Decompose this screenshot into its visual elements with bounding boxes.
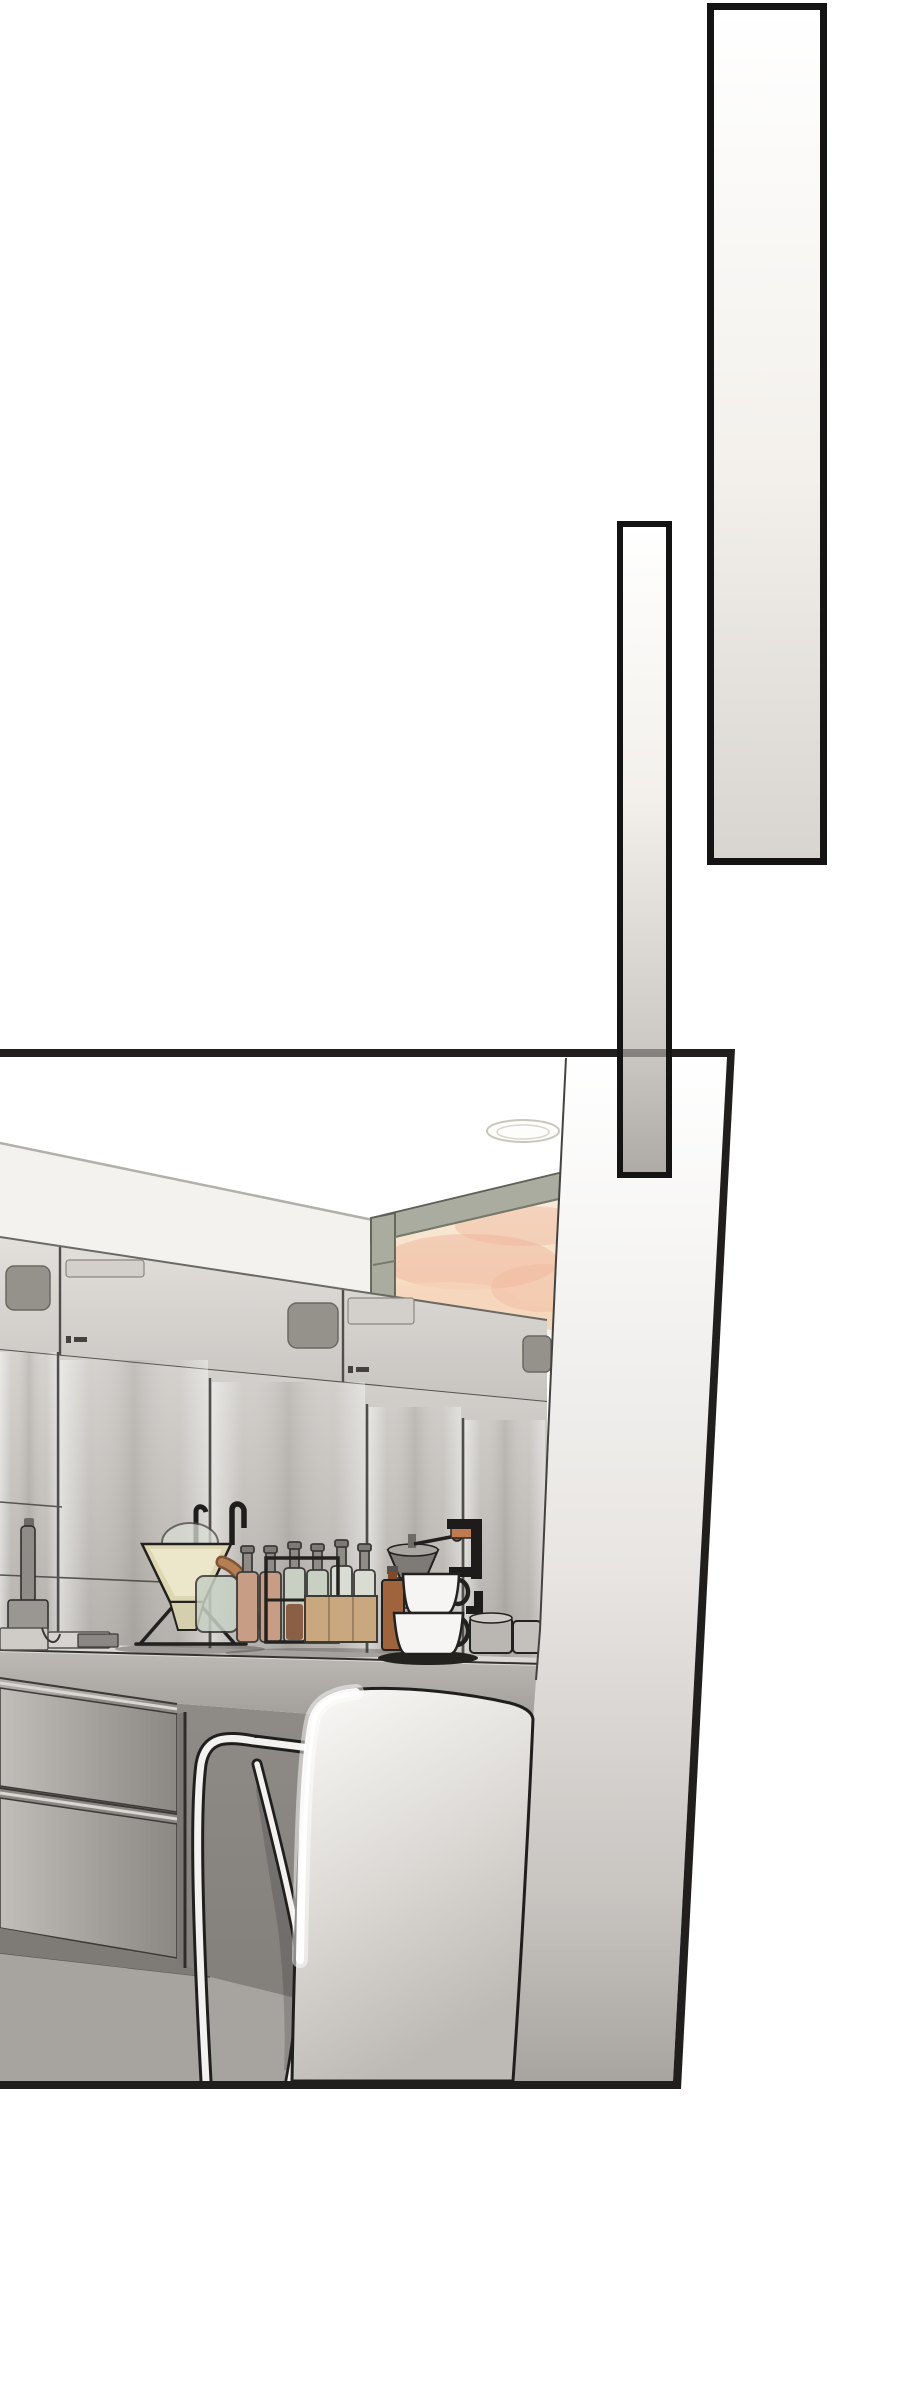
ceiling-lamp bbox=[487, 1120, 559, 1142]
white-cup-2 bbox=[394, 1613, 463, 1654]
recessed-handle-3 bbox=[523, 1336, 551, 1372]
decor-bar-small-fill bbox=[623, 527, 666, 1172]
vent-2 bbox=[348, 1298, 414, 1324]
pitcher-body bbox=[292, 1688, 533, 2081]
decor-bar-large-fill bbox=[714, 10, 820, 858]
decor-bar-large bbox=[707, 3, 827, 865]
white-cup-1 bbox=[403, 1574, 459, 1613]
recessed-handle-2 bbox=[288, 1303, 338, 1348]
glass-carafe bbox=[196, 1576, 238, 1632]
gray-mug-2 bbox=[513, 1621, 541, 1653]
faucet-base bbox=[8, 1600, 48, 1632]
dark-board bbox=[78, 1634, 118, 1647]
vent-1 bbox=[66, 1260, 144, 1277]
recessed-handle-1 bbox=[6, 1266, 50, 1310]
faucet-stem bbox=[21, 1526, 35, 1602]
wooden-box bbox=[305, 1596, 377, 1642]
decor-bar-small bbox=[617, 521, 672, 1178]
cabinet-logo-1 bbox=[66, 1336, 87, 1343]
cabinet-logo-2 bbox=[348, 1366, 369, 1373]
grinder-post bbox=[408, 1534, 416, 1548]
white-tray-1 bbox=[0, 1628, 48, 1650]
kitchen-panel-content bbox=[0, 1057, 735, 2087]
window-frame-left bbox=[371, 1213, 395, 1305]
gray-mug-1-rim bbox=[470, 1613, 512, 1623]
webtoon-page bbox=[0, 0, 900, 2381]
decor-bar-small-crossing-line bbox=[623, 1049, 666, 1057]
drawer-unit bbox=[0, 1678, 207, 1977]
white-pitcher bbox=[292, 1688, 533, 2081]
